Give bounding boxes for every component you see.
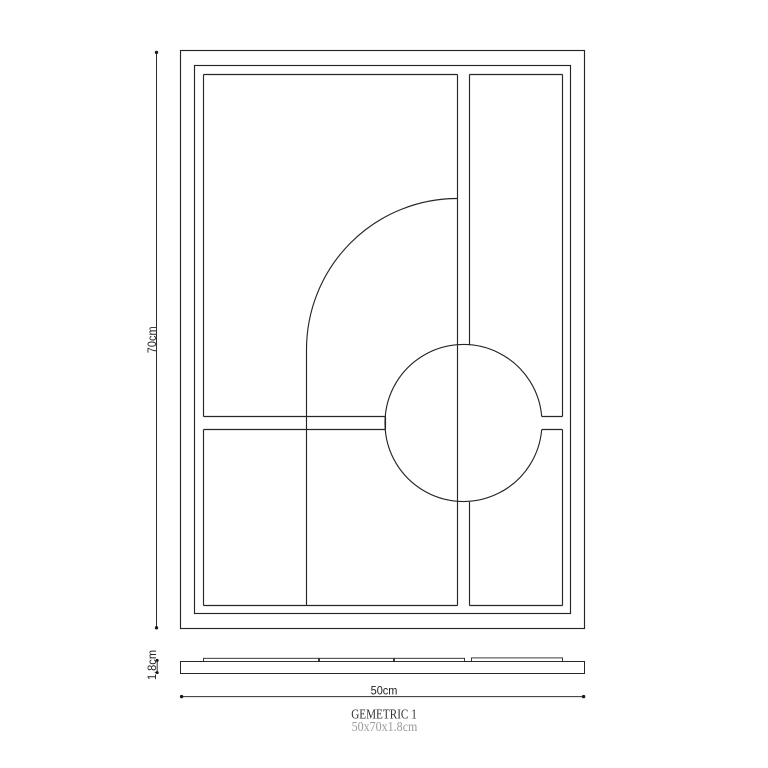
- svg-text:50cm: 50cm: [371, 683, 398, 697]
- svg-text:70cm: 70cm: [145, 326, 159, 353]
- svg-text:1.8cm: 1.8cm: [145, 650, 159, 680]
- svg-text:50x70x1.8cm: 50x70x1.8cm: [352, 719, 418, 734]
